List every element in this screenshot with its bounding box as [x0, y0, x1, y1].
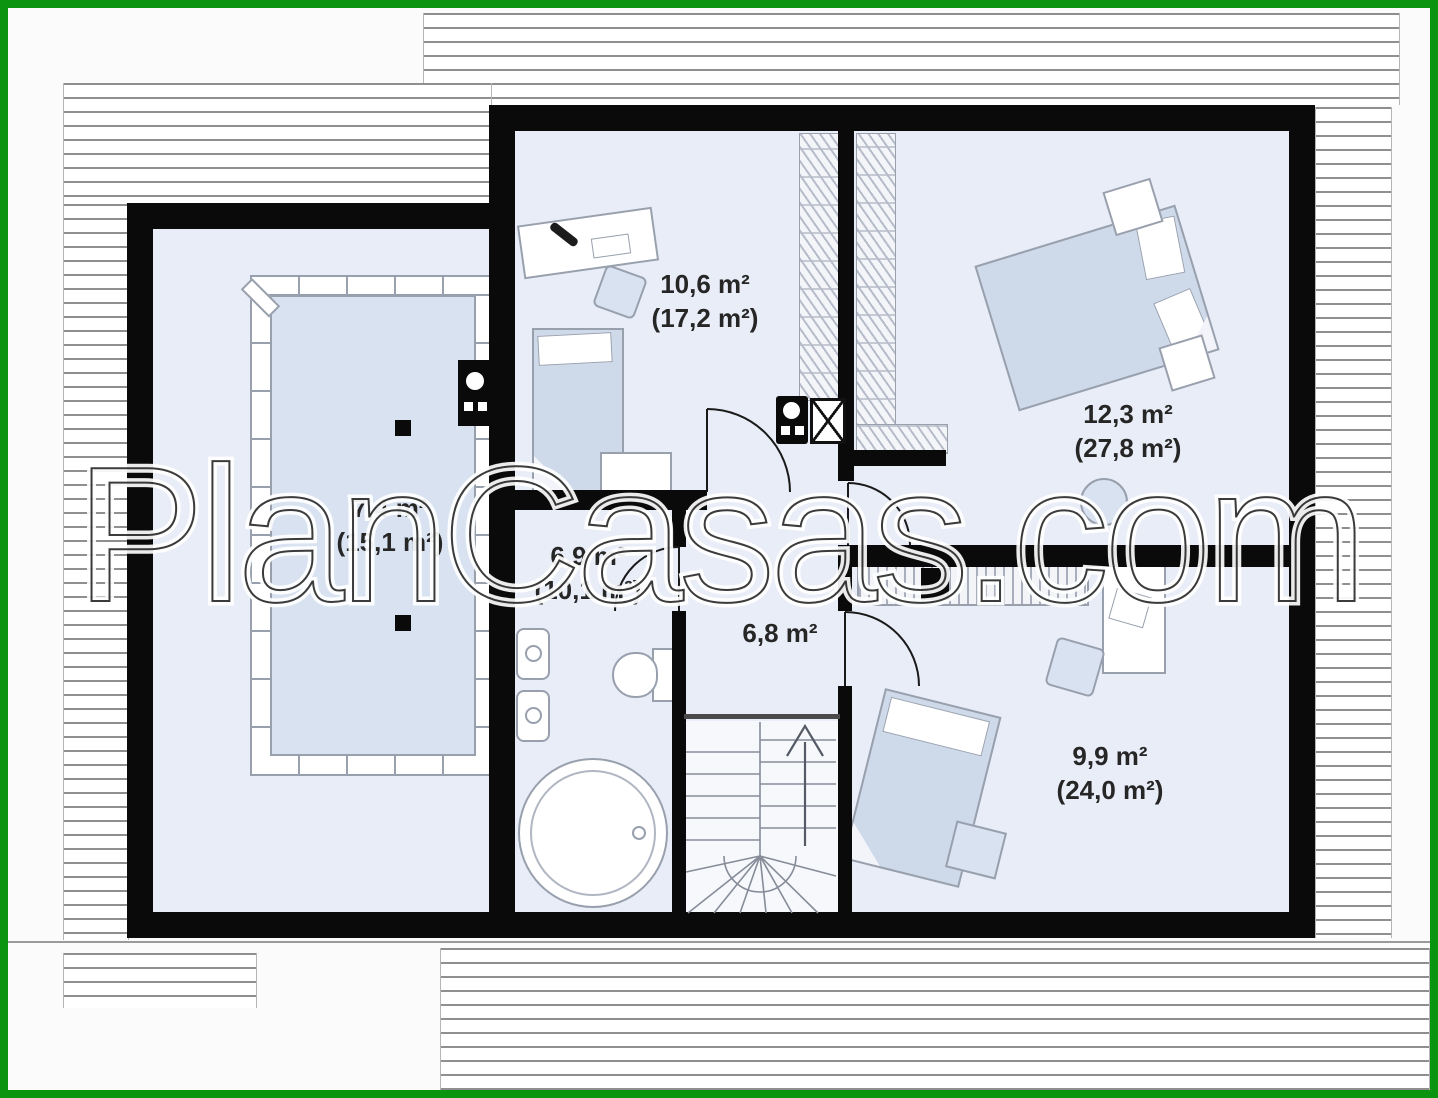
room-area: 9,9 m²: [1010, 740, 1210, 774]
wall-wing-bottom: [127, 912, 513, 938]
watermark-text-edge: PlanCasas.com: [8, 438, 1430, 631]
chimney-flue-circle: [466, 372, 484, 390]
roof-area-top-left: [63, 83, 492, 204]
room-label-study: 10,6 m² (17,2 m²): [615, 268, 795, 336]
basin-drain: [525, 645, 542, 662]
roof-eave-line: [8, 941, 1430, 943]
watermark: PlanCasas.com PlanCasas.com: [8, 438, 1430, 631]
pillow: [537, 332, 612, 366]
boiler-dial: [783, 402, 800, 419]
vent-shaft-right: [856, 133, 896, 427]
room-total-area: (17,2 m²): [615, 302, 795, 336]
room-total-area: (24,0 m²): [1010, 774, 1210, 808]
room-area: 10,6 m²: [615, 268, 795, 302]
floorplan-page: 10,6 m² (17,2 m²) 12,3 m² (27,8 m²) 7,4 …: [0, 0, 1438, 1098]
toilet-bowl: [612, 652, 658, 698]
roof-area-top-right: [423, 13, 1400, 105]
chimney-vent-2: [478, 402, 487, 411]
stairwell-edge: [684, 714, 840, 719]
wall-house-top: [490, 105, 1315, 131]
room-label-bedroom2: 9,9 m² (24,0 m²): [1010, 740, 1210, 808]
wall-house-bottom: [490, 912, 1315, 938]
round-bathtub: [518, 758, 668, 908]
chimney-vent-1: [464, 402, 473, 411]
chimney-block-wing: [458, 360, 492, 426]
basin-drain: [525, 707, 542, 724]
tub-drain: [632, 826, 646, 840]
wall-bath-east-lower: [672, 611, 686, 912]
wall-wing-top: [127, 203, 513, 229]
wall-hall-east-lower: [838, 686, 852, 912]
roof-area-bottom: [440, 948, 1430, 1090]
roof-area-bottom-left: [63, 953, 257, 1008]
vent-shaft-left: [799, 133, 839, 401]
washbasin-2: [516, 690, 550, 742]
floor-stairwell: [686, 721, 838, 913]
